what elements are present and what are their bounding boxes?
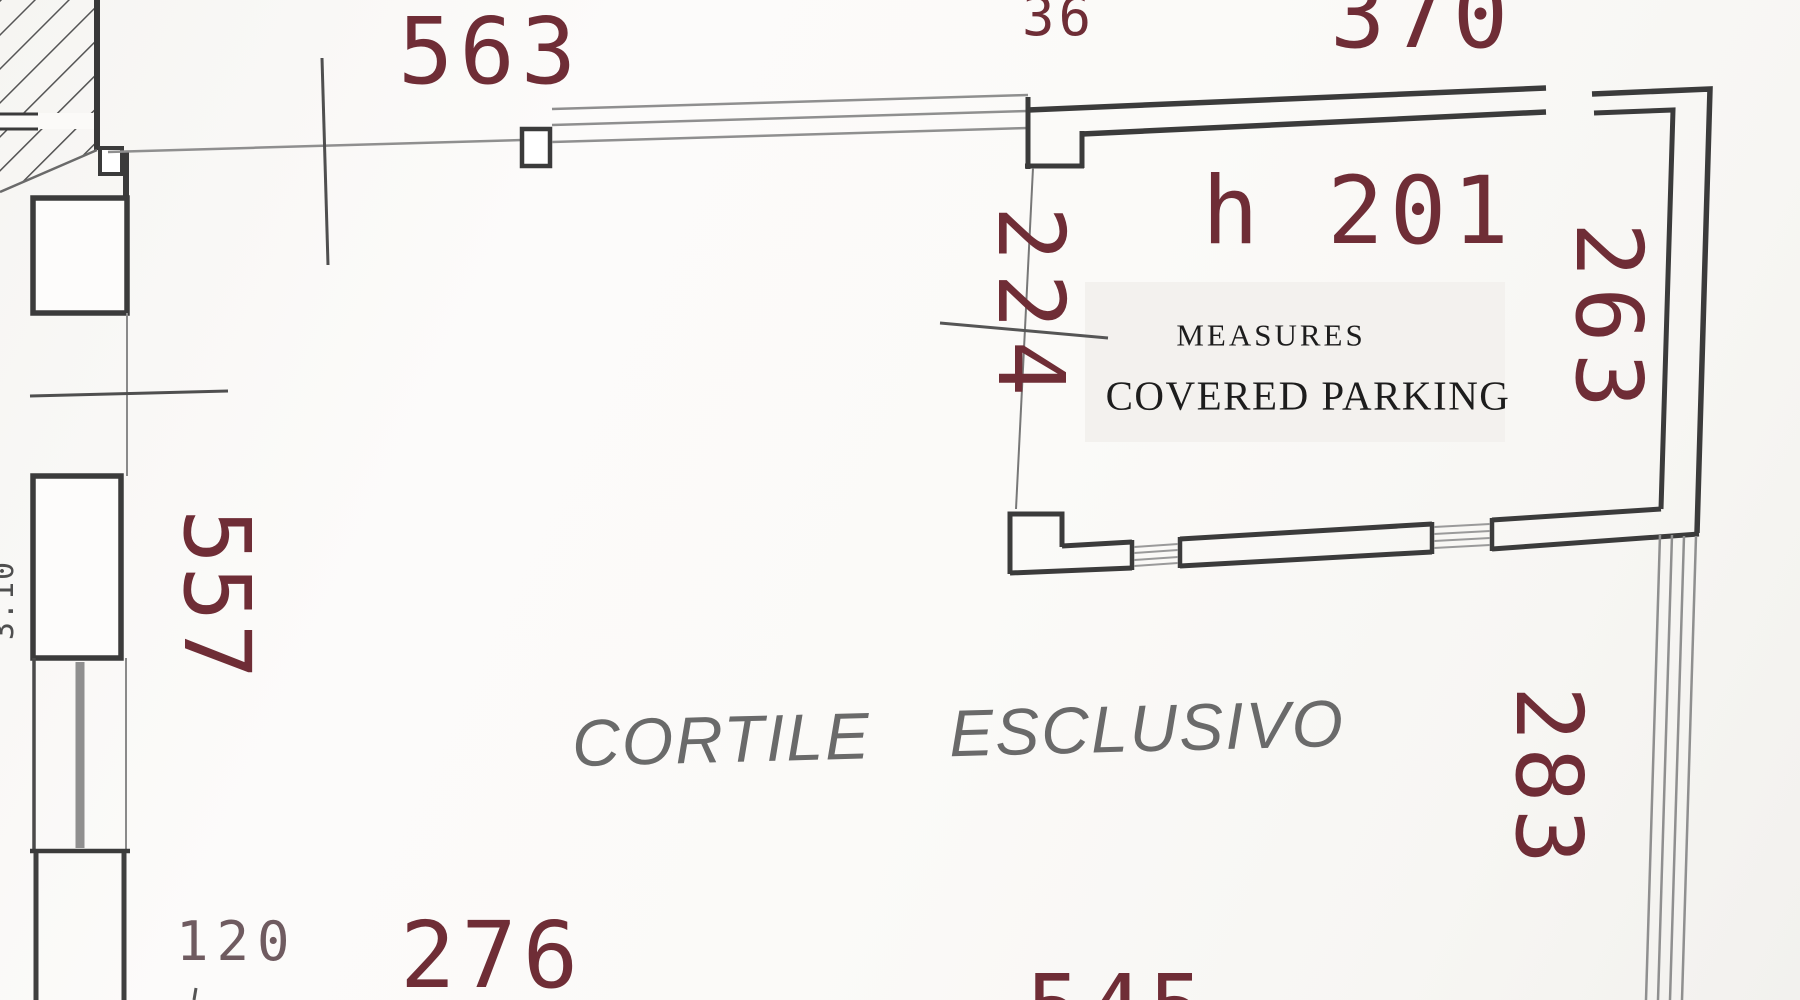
dimension-3-10: 3.10 [0,560,19,640]
parking-window-2 [1434,524,1490,548]
dimension-283: 283 [1502,686,1594,870]
dimension-370: 370 [1330,0,1514,62]
dimension-36: 36 [1022,0,1095,44]
dimension-120: 120 [176,915,298,969]
measures-label: MEASURES [1176,320,1365,351]
dimension-276: 276 [400,910,584,1000]
parking-height-label: h 201 [1202,165,1515,259]
hatched-wall [0,0,122,192]
dimension-557: 557 [170,509,262,681]
right-fence-line [1646,535,1696,1000]
floor-plan-page: 563 36 370 h 201 224 263 557 283 276 545… [0,0,1800,1000]
parking-window-1 [1134,544,1178,566]
covered-parking-label: COVERED PARKING [1106,376,1511,417]
dimension-563: 563 [398,6,582,98]
dimension-224: 224 [984,206,1076,408]
dimension-263: 263 [1562,222,1654,418]
dimension-545: 545 [1026,963,1210,1000]
